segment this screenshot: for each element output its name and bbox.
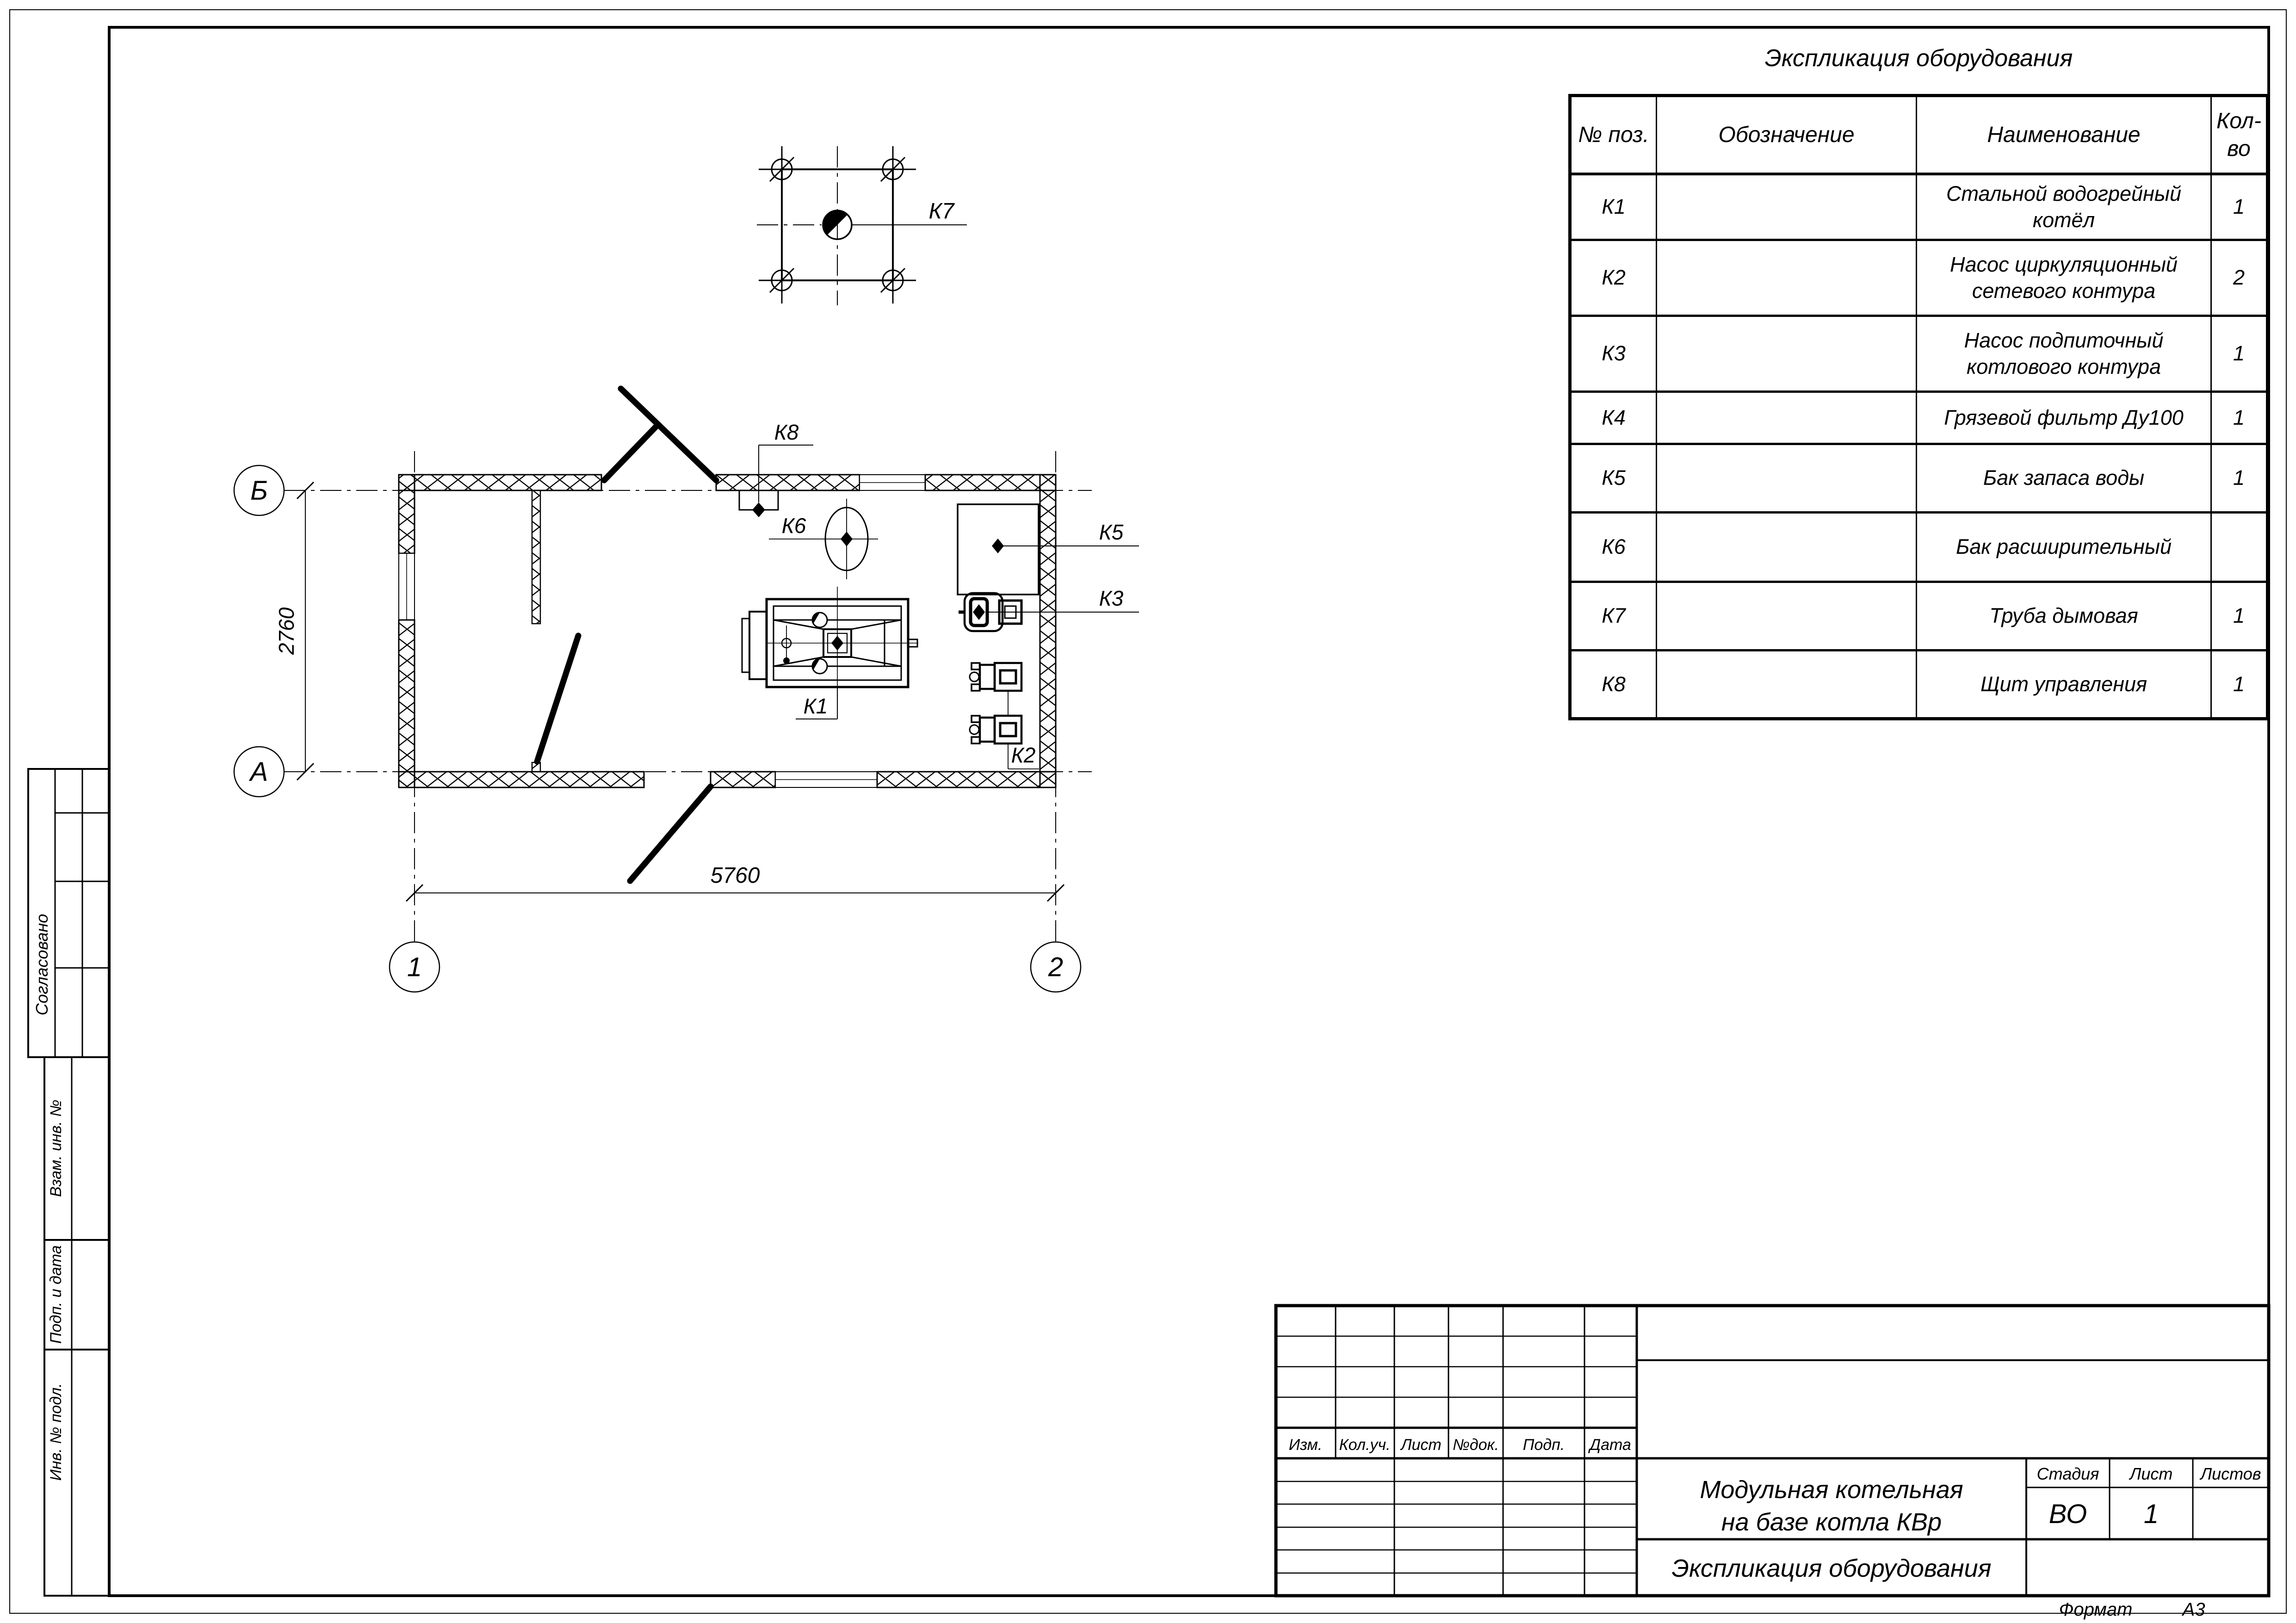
axis-number-left: 1 (407, 952, 422, 982)
table-row: К7 Труба дымовая 1 (1572, 581, 2266, 649)
label-k7: К7 (929, 199, 955, 223)
cell-qty: 1 (2210, 651, 2266, 717)
door-leaves (537, 389, 716, 881)
drawing-sheet: Согласовано Взам. инв. № Подп. и дата Ин… (0, 0, 2296, 1623)
label-k5: К5 (1099, 520, 1124, 544)
format-value: А3 (2182, 1599, 2205, 1620)
cell-designation (1656, 583, 1916, 649)
col-header-name: Наименование (1916, 97, 2210, 173)
table-row: К3 Насос подпиточный котлового контура 1 (1572, 315, 2266, 390)
pump-icon (970, 663, 1021, 691)
label-k6: К6 (782, 514, 806, 538)
anchor-bolt-icon (759, 257, 805, 304)
label-k3: К3 (1099, 586, 1124, 610)
stamp-podp-label: Подп. и дата (47, 1245, 65, 1344)
cell-designation (1656, 514, 1916, 581)
project-title-line1: Модульная котельная (1700, 1476, 1963, 1504)
cell-qty: 2 (2210, 241, 2266, 315)
table-row: К2 Насос циркуляционный сетевого контура… (1572, 239, 2266, 315)
cell-name: Насос подпиточный котлового контура (1916, 317, 2210, 390)
project-title-line2: на базе котла КВр (1721, 1508, 1942, 1536)
cell-pos: К7 (1572, 583, 1656, 649)
entrance-door-leaf (621, 389, 716, 480)
rev-header-list: Лист (1400, 1436, 1442, 1454)
rev-header-ndok: №док. (1453, 1436, 1499, 1454)
dim-width-text: 5760 (711, 863, 760, 888)
left-margin-labels: Согласовано Взам. инв. № Подп. и дата Ин… (32, 914, 65, 1481)
equipment-table-header: № поз. Обозначение Наименование Кол-во (1572, 97, 2266, 173)
table-row: К1 Стальной водогрейный котёл 1 (1572, 173, 2266, 239)
label-k8: К8 (774, 420, 799, 444)
stage-label: Стадия (2037, 1464, 2099, 1483)
cell-name: Стальной водогрейный котёл (1916, 175, 2210, 239)
rev-header-izm: Изм. (1289, 1436, 1323, 1454)
sheet-value: 1 (2144, 1499, 2159, 1529)
interior-door-leaf (537, 636, 578, 762)
stamp-agreed-label: Согласовано (32, 914, 51, 1016)
sheet-label: Лист (2129, 1464, 2173, 1483)
cell-name: Насос циркуляционный сетевого контура (1916, 241, 2210, 315)
left-margin-stamps (28, 769, 109, 1596)
cell-name: Щит управления (1916, 651, 2210, 717)
cell-qty (2210, 514, 2266, 581)
boiler-k1: К1 (742, 587, 918, 719)
stage-value: ВО (2049, 1499, 2087, 1529)
col-header-designation: Обозначение (1656, 97, 1916, 173)
cell-name: Бак расширительный (1916, 514, 2210, 581)
entrance-door-leaf (604, 426, 657, 480)
rev-header-podp: Подп. (1523, 1436, 1565, 1454)
circulation-pump-k2: К2 (970, 663, 1039, 769)
anchor-bolt-icon (759, 146, 805, 192)
boiler-room-plan: 2760 5760 Б А 1 2 К8 (234, 389, 1139, 992)
rear-door-leaf (630, 787, 711, 881)
col-header-pos: № поз. (1572, 97, 1656, 173)
cell-qty: 1 (2210, 583, 2266, 649)
table-row: К5 Бак запаса воды 1 (1572, 443, 2266, 511)
cell-qty: 1 (2210, 175, 2266, 239)
anchor-bolt-icon (870, 257, 916, 304)
table-row: К4 Грязевой фильтр Ду100 1 (1572, 390, 2266, 443)
cell-pos: К2 (1572, 241, 1656, 315)
equipment-table-title: Экспликация оборудования (1568, 44, 2269, 72)
cell-designation (1656, 317, 1916, 390)
axis-letter-top: Б (250, 476, 268, 506)
chimney-detail-k7: К7 (757, 146, 967, 305)
equipment-table: № поз. Обозначение Наименование Кол-во К… (1568, 94, 2269, 720)
col-header-qty: Кол-во (2210, 97, 2266, 173)
table-row: К8 Щит управления 1 (1572, 649, 2266, 717)
cell-pos: К8 (1572, 651, 1656, 717)
cell-pos: К5 (1572, 445, 1656, 511)
cell-pos: К1 (1572, 175, 1656, 239)
stamp-inv-label: Инв. № подл. (47, 1383, 65, 1481)
label-k1: К1 (804, 694, 828, 718)
cell-qty: 1 (2210, 445, 2266, 511)
cell-designation (1656, 241, 1916, 315)
table-row: К6 Бак расширительный (1572, 511, 2266, 581)
axis-bubbles (234, 465, 1081, 992)
anchor-bolt-icon (870, 146, 916, 192)
cell-qty: 1 (2210, 317, 2266, 390)
cell-qty: 1 (2210, 393, 2266, 443)
sheets-label: Листов (2199, 1464, 2261, 1483)
cell-designation (1656, 651, 1916, 717)
stamp-vzam-label: Взам. инв. № (47, 1100, 65, 1197)
cell-pos: К6 (1572, 514, 1656, 581)
cell-name: Труба дымовая (1916, 583, 2210, 649)
label-k2: К2 (1011, 743, 1036, 767)
format-label: Формат (2059, 1599, 2133, 1620)
axis-number-right: 2 (1048, 952, 1063, 982)
dimension-vertical (297, 482, 314, 780)
cell-pos: К3 (1572, 317, 1656, 390)
title-block-text: Изм. Кол.уч. Лист №док. Подп. Дата Модул… (1289, 1436, 2261, 1620)
axis-letter-bottom: А (249, 757, 268, 787)
dim-height-text: 2760 (274, 607, 298, 655)
rev-header-data: Дата (1588, 1436, 1631, 1454)
control-panel-k8: К8 (739, 420, 813, 517)
pump-icon (970, 716, 1021, 743)
doc-title: Экспликация оборудования (1671, 1555, 1991, 1582)
cell-designation (1656, 445, 1916, 511)
cell-designation (1656, 393, 1916, 443)
cell-pos: К4 (1572, 393, 1656, 443)
expansion-tank-k6: К6 (769, 499, 878, 579)
cell-name: Бак запаса воды (1916, 445, 2210, 511)
rev-header-koluch: Кол.уч. (1339, 1436, 1391, 1454)
cell-name: Грязевой фильтр Ду100 (1916, 393, 2210, 443)
cell-designation (1656, 175, 1916, 239)
